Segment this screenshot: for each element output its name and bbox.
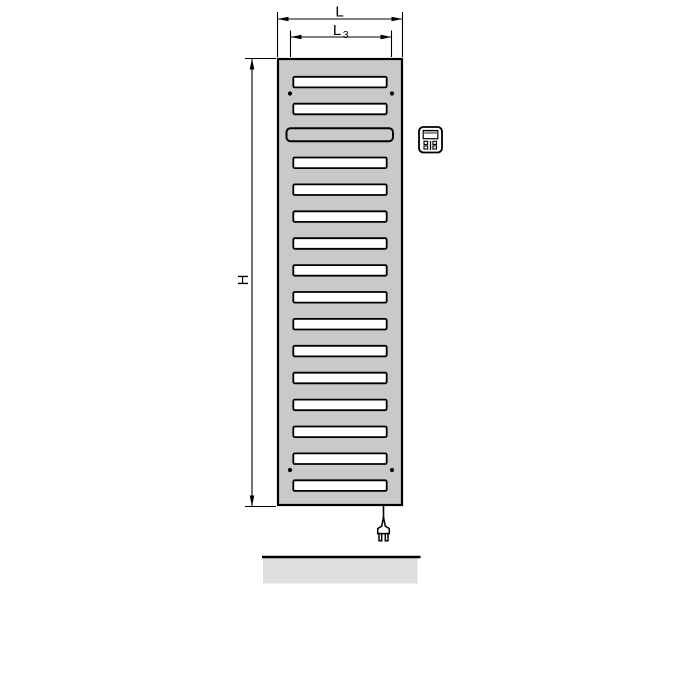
arrowhead-right <box>381 35 392 40</box>
dimension-label-L3-base: L <box>333 22 341 39</box>
radiator-panel <box>278 59 402 505</box>
vent-slot <box>293 77 386 88</box>
floor-slab-body <box>263 558 418 584</box>
dimension-label-L3-subscript: 3 <box>343 29 349 41</box>
power-plug-icon <box>378 505 390 541</box>
arrowhead-left <box>278 17 289 22</box>
arrowhead-bottom <box>250 496 255 507</box>
mount-hole-dot <box>288 468 292 472</box>
plug-body <box>378 517 390 533</box>
plug-prong-right <box>385 534 388 541</box>
controller-button <box>433 146 437 149</box>
vent-slot <box>293 184 386 195</box>
controller-button <box>433 141 437 144</box>
mount-hole-dot <box>390 91 394 95</box>
vent-slot <box>293 400 386 411</box>
controller-icon <box>419 127 442 153</box>
floor-slab <box>262 557 421 584</box>
vent-slot <box>293 480 386 491</box>
controller-display-band <box>424 132 437 134</box>
vent-slot <box>293 104 386 115</box>
controller-button <box>424 146 428 149</box>
vent-slot <box>293 346 386 357</box>
dimension-H: H <box>235 59 276 507</box>
arrowhead-left <box>291 35 302 40</box>
controller-button <box>424 141 428 144</box>
vent-slot <box>293 427 386 438</box>
vent-slot <box>293 238 386 249</box>
mount-hole-dot <box>390 468 394 472</box>
mount-hole-dot <box>288 91 292 95</box>
dimension-label-H: H <box>235 275 252 286</box>
vent-slot <box>293 211 386 222</box>
vent-slot <box>293 373 386 384</box>
vent-slot <box>293 292 386 303</box>
vent-slot <box>293 158 386 169</box>
plug-prong-left <box>379 534 382 541</box>
radiator-dimension-diagram: L L 3 H <box>0 0 700 700</box>
arrowhead-right <box>392 17 403 22</box>
vent-slot <box>293 265 386 276</box>
vent-slot <box>293 319 386 330</box>
cover-strip-slot <box>287 128 394 141</box>
dimension-L3: L 3 <box>291 22 392 57</box>
vent-slot <box>293 453 386 464</box>
arrowhead-top <box>250 59 255 70</box>
dimension-label-L: L <box>335 4 343 21</box>
